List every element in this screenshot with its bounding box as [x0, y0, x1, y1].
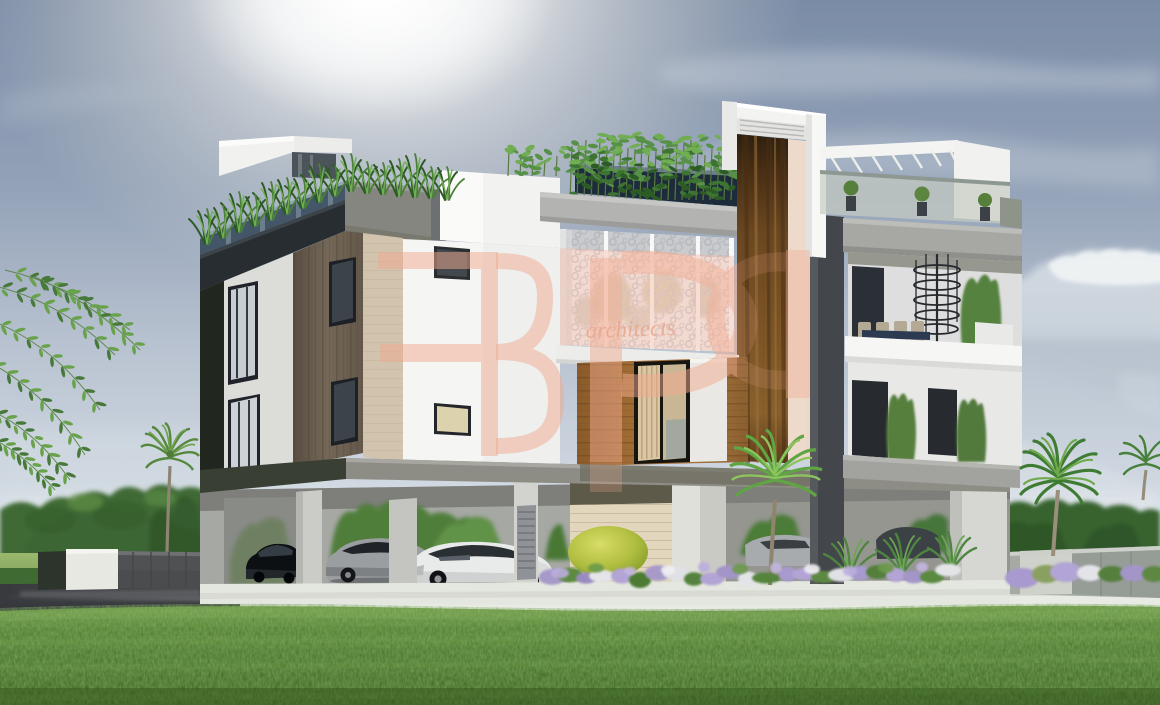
- svg-text:architects: architects: [585, 315, 676, 343]
